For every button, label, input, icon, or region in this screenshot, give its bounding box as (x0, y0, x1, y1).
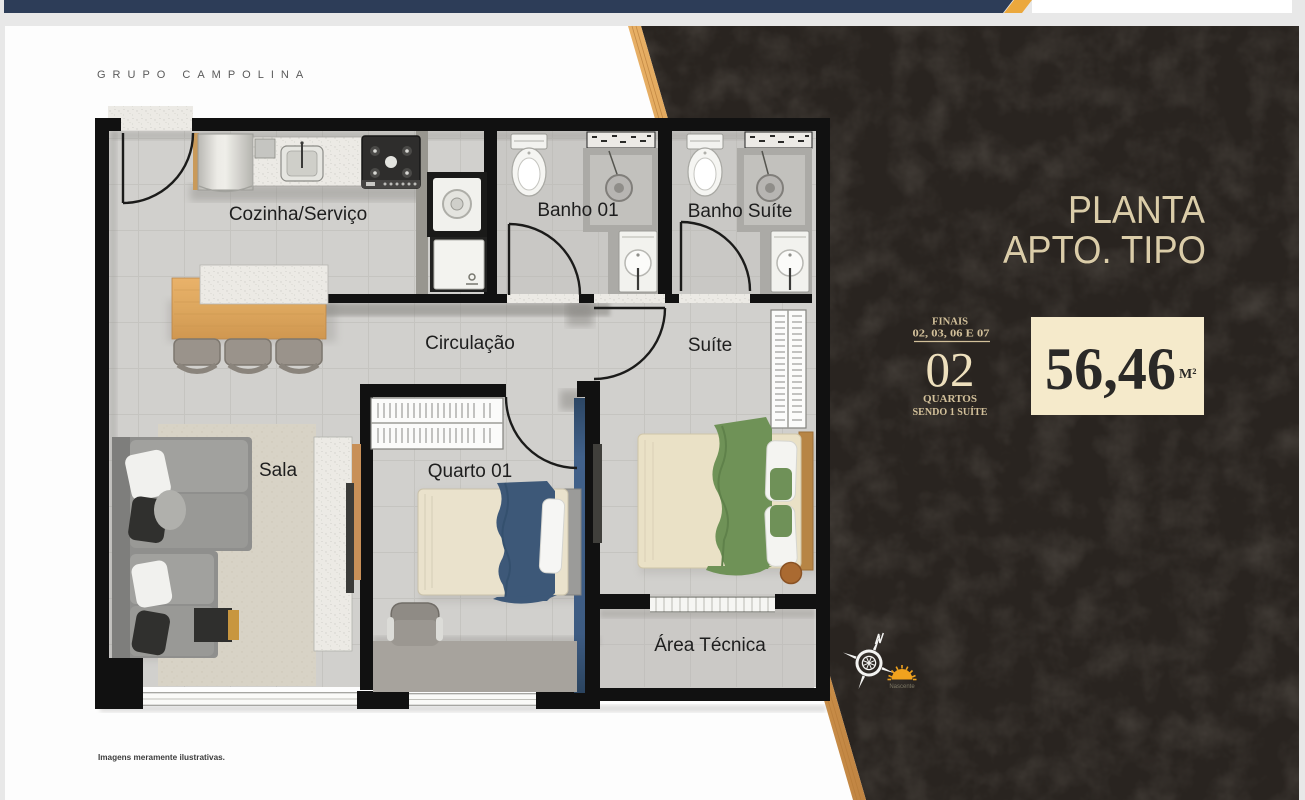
svg-text:Nascente: Nascente (889, 684, 915, 690)
svg-text:Sala: Sala (259, 460, 297, 481)
svg-text:PLANTA: PLANTA (1068, 189, 1205, 232)
svg-text:Suíte: Suíte (688, 335, 732, 356)
svg-text:56,46: 56,46 (1045, 336, 1176, 402)
svg-text:Circulação: Circulação (425, 333, 515, 354)
svg-text:02: 02 (926, 342, 975, 397)
svg-text:Banho Suíte: Banho Suíte (688, 201, 793, 222)
svg-text:Quarto 01: Quarto 01 (428, 461, 513, 482)
svg-text:FINAIS: FINAIS (932, 317, 968, 328)
svg-text:02, 03, 06 E 07: 02, 03, 06 E 07 (913, 329, 990, 340)
svg-text:Cozinha/Serviço: Cozinha/Serviço (229, 204, 367, 225)
svg-text:Imagens meramente ilustrativas: Imagens meramente ilustrativas. (98, 753, 225, 762)
svg-text:GRUPO CAMPOLINA: GRUPO CAMPOLINA (97, 69, 310, 81)
svg-text:QUARTOS: QUARTOS (923, 394, 977, 405)
svg-text:Banho 01: Banho 01 (537, 200, 618, 221)
svg-text:SENDO 1 SUÍTE: SENDO 1 SUÍTE (913, 406, 988, 418)
svg-text:APTO. TIPO: APTO. TIPO (1003, 229, 1206, 272)
svg-text:Área Técnica: Área Técnica (654, 635, 766, 656)
svg-text:M²: M² (1179, 367, 1196, 382)
